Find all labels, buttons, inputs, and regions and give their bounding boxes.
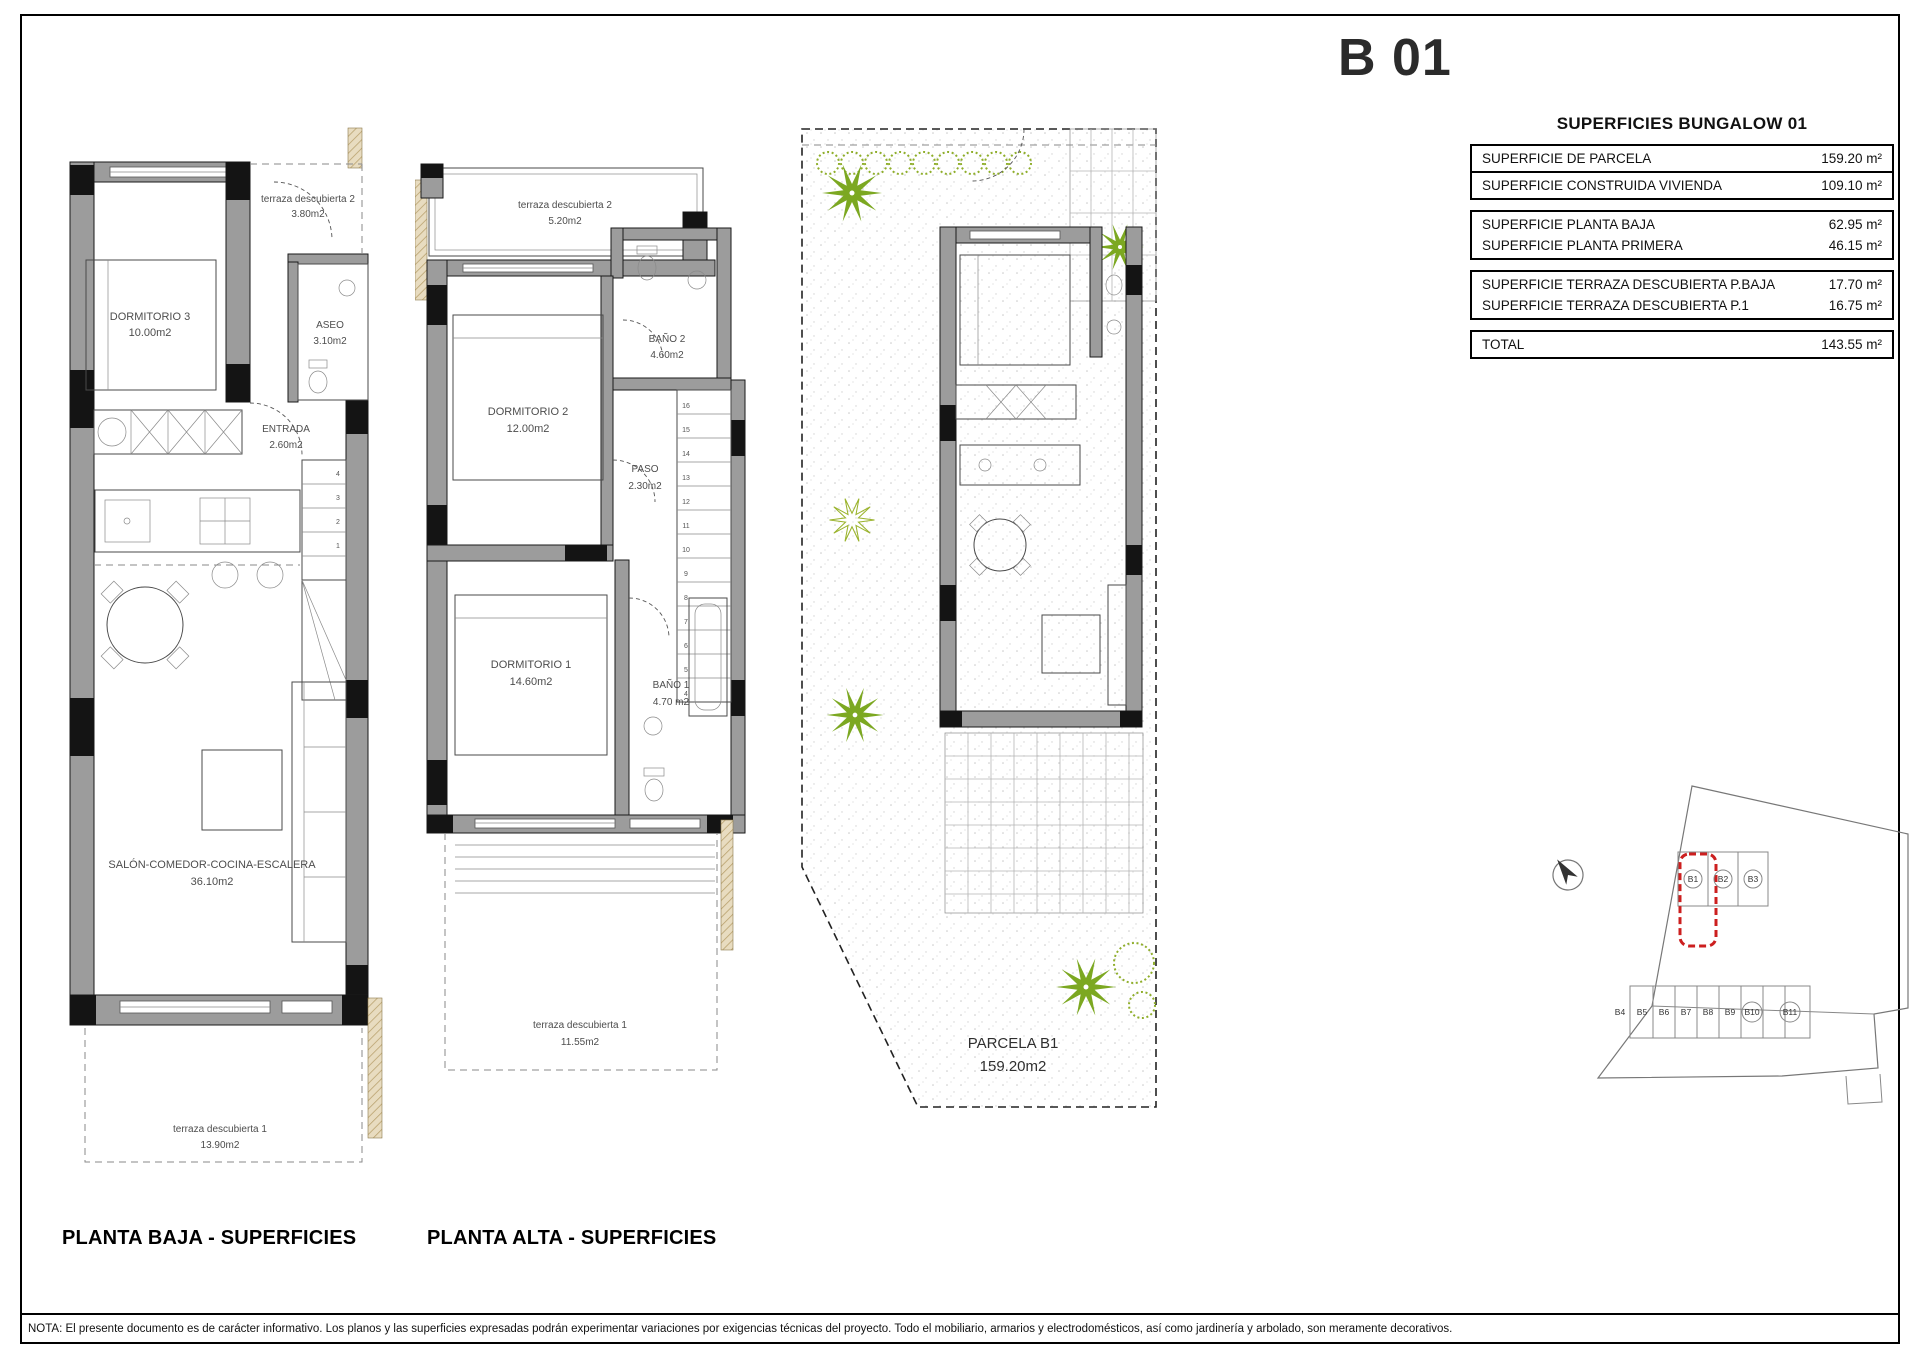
plot-label: B2 [1718, 874, 1729, 884]
room-name: ASEO [316, 320, 344, 331]
stair-number: 8 [684, 595, 688, 602]
plot-label: B10 [1744, 1007, 1759, 1017]
room-name: terraza descubierta 2 [261, 194, 355, 205]
terraza-descubierta-2-zone: terraza descubierta 2 3.80m2 [250, 128, 362, 254]
site-plan-drawing: PARCELA B1 159.20m2 [790, 115, 1170, 1125]
walls [427, 228, 745, 833]
surface-summary-table: SUPERFICIES BUNGALOW 01 SUPERFICIE DE PA… [1470, 114, 1894, 359]
bano-1: BAÑO 1 4.70 m2 [629, 598, 727, 801]
plot-label: B9 [1725, 1007, 1736, 1017]
row-value: 17.70 m² [1829, 274, 1882, 295]
row-label: SUPERFICIE TERRAZA DESCUBIERTA P.1 [1482, 295, 1749, 316]
map-boundary-tab [1846, 1074, 1882, 1104]
row-value: 62.95 m² [1829, 214, 1882, 235]
dining-table [101, 581, 189, 669]
row-value: 159.20 m² [1821, 148, 1882, 169]
stair-number: 15 [682, 427, 690, 434]
summary-row-parcela: SUPERFICIE DE PARCELA159.20 m² [1470, 144, 1894, 173]
plot-label: B11 [1783, 1007, 1798, 1017]
room-area: 3.10m2 [313, 336, 347, 347]
terraza-descubierta-1-zone: terraza descubierta 1 11.55m2 [445, 820, 733, 1070]
plot-label: B6 [1659, 1007, 1670, 1017]
wardrobe [94, 410, 242, 454]
stair-number: 13 [682, 475, 690, 482]
entrada: ENTRADA 2.60m2 [250, 403, 310, 455]
room-name: DORMITORIO 1 [491, 659, 571, 671]
room-area: 10.00m2 [129, 327, 172, 339]
room-name: ENTRADA [262, 424, 310, 435]
stair-number: 1 [336, 543, 340, 550]
planta-alta-title: PLANTA ALTA - SUPERFICIES [427, 1227, 716, 1250]
room-area: 2.60m2 [269, 440, 303, 451]
row-label: TOTAL [1482, 334, 1524, 355]
stair-number: 16 [682, 403, 690, 410]
summary-title: SUPERFICIES BUNGALOW 01 [1470, 114, 1894, 134]
plot-b1-highlight [1680, 854, 1716, 946]
row-label: SUPERFICIE PLANTA BAJA [1482, 214, 1655, 235]
stair-number: 3 [336, 495, 340, 502]
dormitorio-2: DORMITORIO 2 12.00m2 [453, 315, 603, 480]
bottom-plot-row: B4 B5 B6 B7 B8 B9 B10 B11 [1615, 986, 1810, 1038]
location-map: B1 B2 B3 B4 B5 B6 B7 B8 B9 B10 B11 [1530, 770, 1920, 1115]
room-area: 14.60m2 [510, 676, 553, 688]
summary-group-plantas: SUPERFICIE PLANTA BAJA62.95 m² SUPERFICI… [1470, 210, 1894, 260]
row-value: 46.15 m² [1829, 235, 1882, 256]
stair-number: 5 [684, 667, 688, 674]
dormitorio-1: DORMITORIO 1 14.60m2 [455, 595, 607, 755]
planta-baja-title: PLANTA BAJA - SUPERFICIES [62, 1227, 356, 1250]
planta-baja-drawing: terraza descubierta 2 3.80m2 DORMITORIO … [50, 120, 460, 1235]
room-area: 36.10m2 [191, 876, 234, 888]
stair-number: 6 [684, 643, 688, 650]
plot-label: B7 [1681, 1007, 1692, 1017]
row-label: SUPERFICIE TERRAZA DESCUBIERTA P.BAJA [1482, 274, 1775, 295]
map-boundary [1598, 786, 1908, 1078]
stair-number: 11 [682, 523, 689, 530]
row-label: SUPERFICIE PLANTA PRIMERA [1482, 235, 1683, 256]
row-label: SUPERFICIE CONSTRUIDA VIVIENDA [1482, 175, 1722, 196]
row-value: 109.10 m² [1821, 175, 1882, 196]
row-value: 16.75 m² [1829, 295, 1882, 316]
stair-number: 7 [684, 619, 688, 626]
stairs-baja: 4 3 2 1 [302, 460, 346, 700]
room-name: terraza descubierta 2 [518, 200, 612, 211]
bungalow-code-title: B 01 [1338, 28, 1452, 88]
room-area: 3.80m2 [291, 209, 325, 220]
walls [70, 162, 368, 1025]
stair-number: 14 [682, 451, 690, 458]
paso: PASO 2.30m2 [613, 460, 662, 502]
footer-note: NOTA: El presente documento es de caráct… [20, 1313, 1900, 1344]
row-value: 143.55 m² [1821, 334, 1882, 355]
room-area: 4.70 m2 [653, 697, 690, 708]
parcel-area: 159.20m2 [980, 1058, 1047, 1075]
plot-label: B1 [1688, 874, 1699, 884]
room-name: BAÑO 1 [653, 678, 690, 691]
stair-number: 4 [336, 471, 340, 478]
top-plot-row: B1 B2 B3 [1678, 852, 1768, 946]
room-name: SALÓN-COMEDOR-COCINA-ESCALERA [108, 858, 316, 871]
row-label: SUPERFICIE DE PARCELA [1482, 148, 1651, 169]
room-area: 5.20m2 [548, 216, 582, 227]
room-area: 11.55m2 [561, 1037, 600, 1048]
parcel-name: PARCELA B1 [968, 1035, 1059, 1052]
kitchen-island [94, 490, 300, 588]
plot-label: B8 [1703, 1007, 1714, 1017]
planta-alta-drawing: terraza descubierta 2 5.20m2 DORMITORIO … [415, 120, 755, 1235]
stair-number: 2 [336, 519, 340, 526]
room-name: terraza descubierta 1 [173, 1124, 267, 1135]
parcel-boundary [802, 129, 1156, 1107]
room-name: BAÑO 2 [649, 332, 686, 345]
summary-row-construida: SUPERFICIE CONSTRUIDA VIVIENDA109.10 m² [1470, 171, 1894, 200]
stair-number: 10 [682, 547, 690, 554]
room-name: DORMITORIO 2 [488, 406, 568, 418]
room-name: DORMITORIO 3 [110, 311, 190, 323]
plot-label: B3 [1748, 874, 1759, 884]
room-name: terraza descubierta 1 [533, 1020, 627, 1031]
room-area: 13.90m2 [201, 1140, 240, 1151]
plot-label: B5 [1637, 1007, 1648, 1017]
room-area: 4.60m2 [650, 350, 684, 361]
room-area: 2.30m2 [628, 481, 662, 492]
summary-group-terrazas: SUPERFICIE TERRAZA DESCUBIERTA P.BAJA17.… [1470, 270, 1894, 320]
dormitorio-3: DORMITORIO 3 10.00m2 [86, 260, 216, 390]
room-name: PASO [631, 464, 658, 475]
aseo: ASEO 3.10m2 [298, 264, 368, 400]
plot-label: B4 [1615, 1007, 1626, 1017]
stair-number: 9 [684, 571, 688, 578]
salon-label: SALÓN-COMEDOR-COCINA-ESCALERA 36.10m2 [108, 858, 316, 888]
sofa [202, 682, 346, 942]
stairs-alta: 16 15 14 13 12 11 10 9 8 7 6 5 4 [677, 390, 731, 702]
north-arrow-icon [1545, 851, 1589, 896]
summary-row-total: TOTAL143.55 m² [1470, 330, 1894, 359]
room-area: 12.00m2 [507, 423, 550, 435]
stair-number: 12 [682, 499, 690, 506]
